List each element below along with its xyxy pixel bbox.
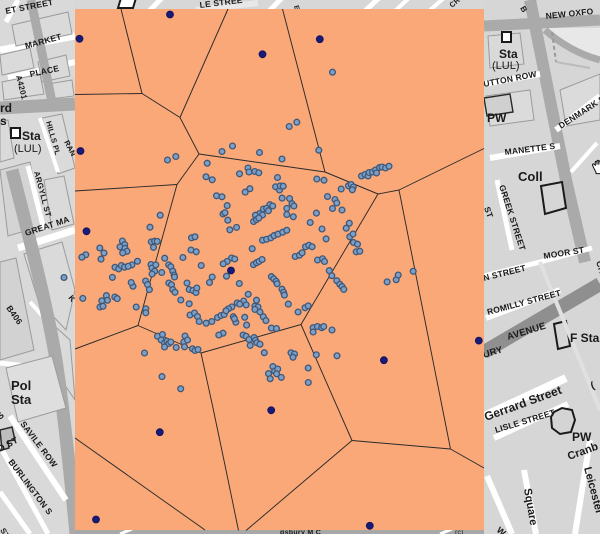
svg-text:(c): (c): [455, 530, 463, 534]
svg-text:PW: PW: [487, 111, 507, 125]
svg-text:rd: rd: [0, 101, 12, 115]
svg-text:s: s: [0, 114, 7, 128]
svg-text:PW: PW: [572, 430, 592, 444]
svg-text:Sta: Sta: [11, 392, 32, 407]
svg-text:Coll: Coll: [518, 169, 543, 184]
svg-text:(LUL): (LUL): [492, 60, 520, 72]
svg-text:Sta: Sta: [22, 129, 41, 143]
svg-text:gsbury M C: gsbury M C: [280, 530, 321, 534]
svg-text:F Sta: F Sta: [570, 331, 600, 345]
svg-text:Pol: Pol: [11, 378, 31, 393]
svg-text:Sta: Sta: [499, 47, 518, 61]
svg-text:(LUL): (LUL): [14, 143, 42, 155]
